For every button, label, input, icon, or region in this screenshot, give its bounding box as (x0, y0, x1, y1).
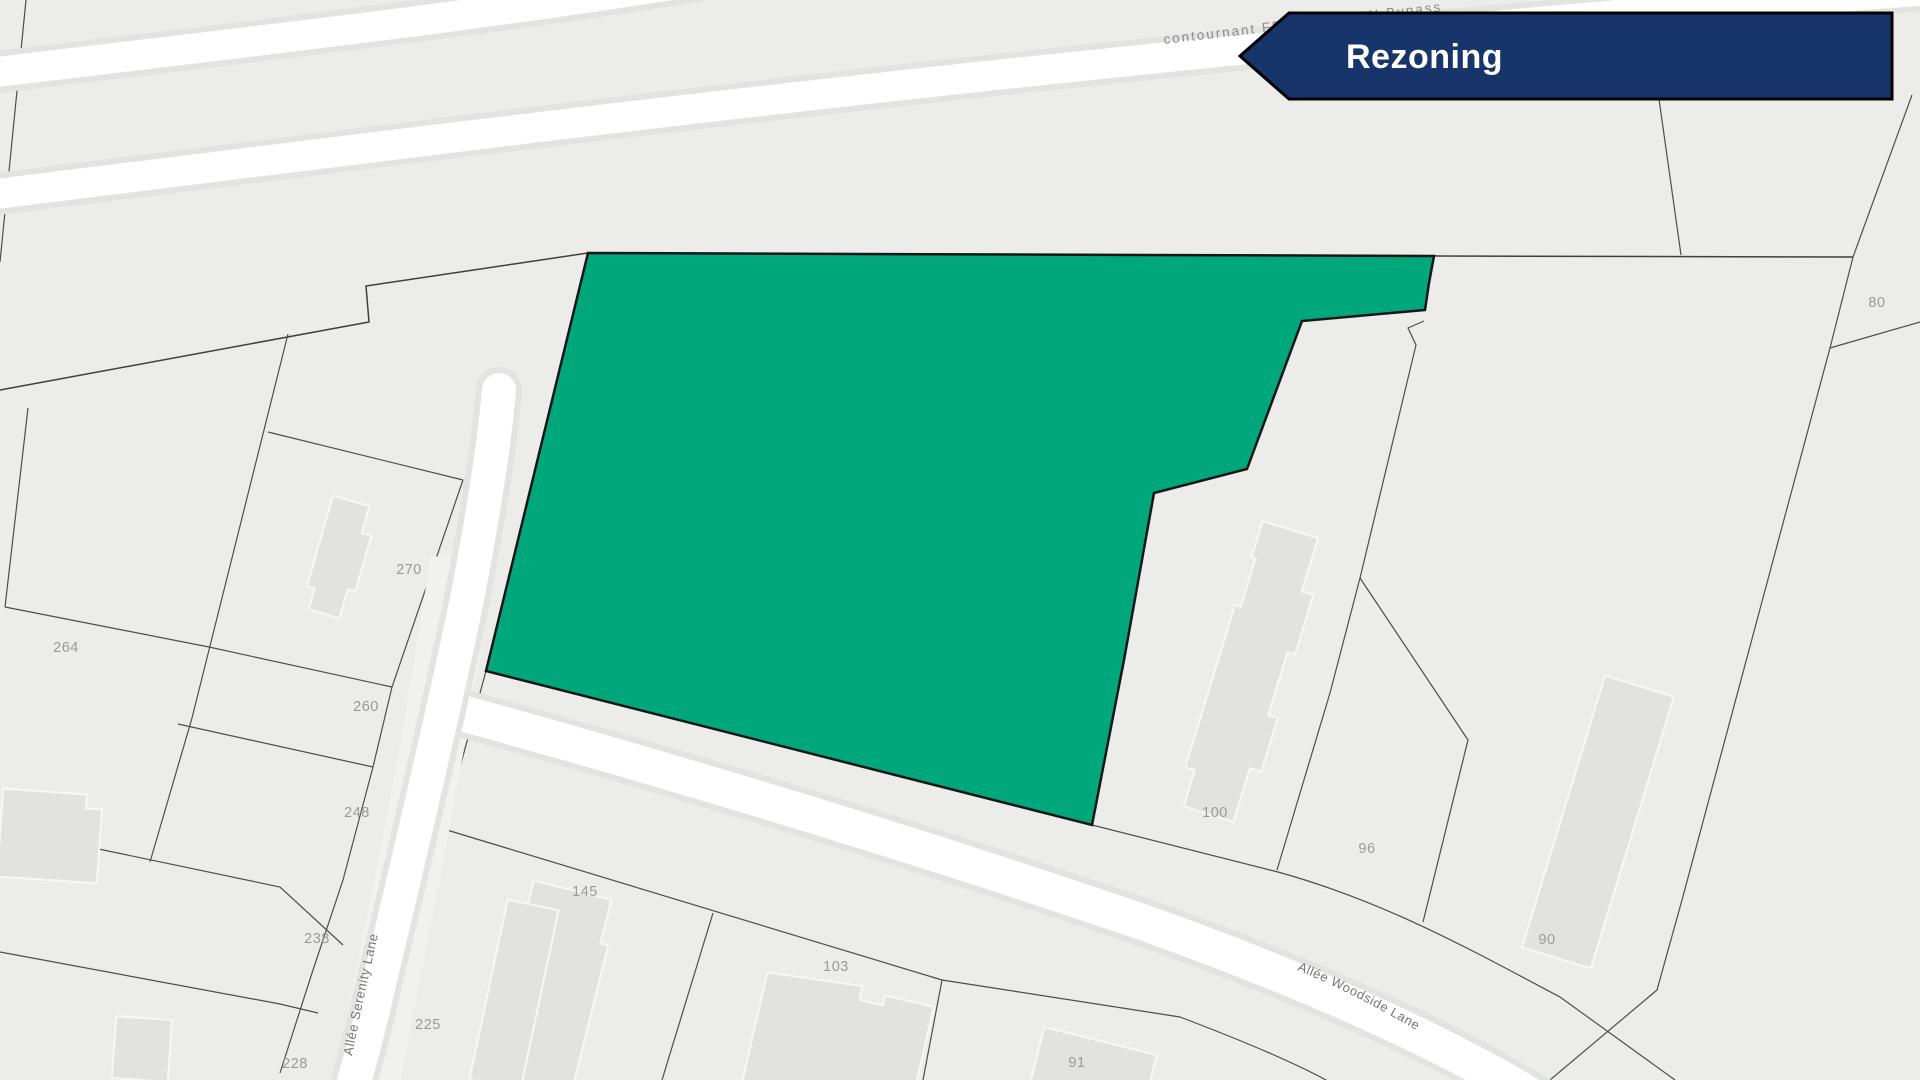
parcel-label: 225 (415, 1017, 441, 1033)
parcel-label: 228 (282, 1056, 308, 1072)
parcel-label: 90 (1538, 932, 1555, 948)
parcel-label: 248 (344, 805, 370, 821)
parcel-label: 100 (1202, 805, 1228, 821)
parcel-label: 145 (572, 884, 598, 900)
banner-arrow-shape (1240, 13, 1892, 99)
parcel-label: 80 (1868, 295, 1885, 311)
building-left-2 (112, 1016, 172, 1080)
parcel-label: 260 (353, 699, 379, 715)
parcel-label: 96 (1358, 841, 1375, 857)
parcel-label: 238 (304, 931, 330, 947)
parcel-label: 264 (53, 640, 79, 656)
banner-label: Rezoning (1346, 38, 1503, 76)
parcel-label: 103 (823, 959, 849, 975)
parcel-label: 270 (396, 562, 422, 578)
zoning-map-canvas[interactable]: contournant FREDERICTON Bypass Allée Ser… (0, 0, 1920, 1080)
parcel-label: 91 (1068, 1055, 1085, 1071)
rezoning-banner: Rezoning (1240, 13, 1892, 99)
